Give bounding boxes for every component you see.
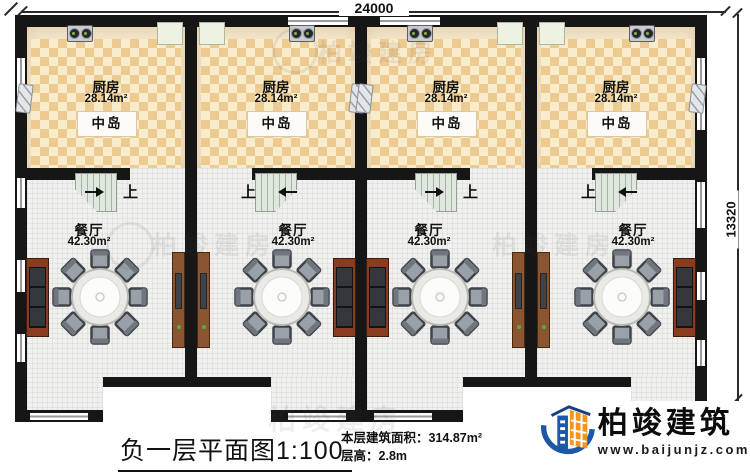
watermark-text: 柏竣建房 (492, 226, 616, 262)
cabinet (172, 252, 185, 348)
plan-scale: 1:100 (276, 437, 344, 465)
wall-party-3-4 (525, 15, 537, 387)
watermark-text: 柏竣建房 (152, 226, 276, 262)
wall-party-2-3 (355, 15, 367, 422)
stair-direction-arrow (425, 191, 437, 193)
unit-3: 上 厨房 28.14m² 中岛 餐厅 42.30m² (367, 27, 525, 422)
kitchen-island: 中岛 (247, 111, 307, 137)
sofa-cushions (369, 267, 386, 328)
stairs-up-label: 上 (241, 181, 256, 202)
dining-floor-extension (27, 377, 103, 410)
window (697, 272, 705, 300)
brand-website: www.baijunjz.com (598, 442, 750, 457)
window (17, 260, 25, 292)
brand-logo-icon (536, 401, 598, 465)
sofa (673, 258, 696, 337)
window (697, 340, 705, 366)
sofa (26, 258, 49, 337)
unit-1: 上 厨房 28.14m² 中岛 餐厅 42.30m² (27, 27, 185, 422)
sofa (366, 258, 389, 337)
stair-direction-arrow (625, 191, 637, 193)
floor-height-row: 层高：2.8m (341, 447, 482, 465)
window (380, 17, 440, 25)
brand-name: 柏竣建筑 (598, 409, 750, 439)
sofa-cushions (29, 267, 46, 328)
sofa-cushions (676, 267, 693, 328)
kitchen-area-label: 28.14m² (27, 93, 185, 105)
burner-icon (643, 28, 654, 39)
kitchen-island: 中岛 (587, 111, 647, 137)
stairs-up-label: 上 (463, 181, 478, 202)
floor-area-value: 314.87m² (429, 431, 483, 445)
fridge (199, 22, 225, 45)
floor-area-row: 本层建筑面积：314.87m² (341, 429, 482, 447)
window (288, 17, 348, 25)
kitchen-area-label: 28.14m² (197, 93, 355, 105)
stove-icon (629, 25, 655, 42)
fridge (157, 22, 183, 45)
floor-height-value: 2.8m (379, 449, 408, 463)
kitchen-area-label: 28.14m² (537, 93, 695, 105)
window (697, 182, 705, 228)
kitchen-island: 中岛 (77, 111, 137, 137)
cabinet (537, 252, 550, 348)
wall-party-1-2 (185, 15, 197, 387)
brand-logo: 柏竣建筑 www.baijunjz.com (532, 401, 750, 465)
window (17, 178, 25, 208)
kitchen-area-label: 28.14m² (367, 93, 525, 105)
floor-area-label: 本层建筑面积： (341, 431, 429, 445)
brand-text: 柏竣建筑 www.baijunjz.com (598, 409, 750, 457)
stove-icon (67, 25, 93, 42)
dining-table (384, 241, 496, 353)
burner-icon (81, 28, 92, 39)
fridge (539, 22, 565, 45)
cabinet (512, 252, 525, 348)
unit-2: 上 厨房 28.14m² 中岛 餐厅 42.30m² (197, 27, 355, 422)
stair-direction-arrow (85, 191, 97, 193)
watermark-logo-circle (272, 28, 318, 74)
plan-title: 负一层平面图1:100 (118, 431, 352, 472)
corner-break-mark (4, 2, 18, 16)
watermark-text: 柏竣建房 (318, 33, 438, 68)
window (17, 334, 25, 362)
sofa-cushions (336, 267, 353, 328)
dimension-top-label: 24000 (339, 0, 409, 16)
burner-icon (69, 28, 80, 39)
watermark-logo-circle (106, 222, 154, 270)
dimension-right-label: 13320 (724, 191, 739, 249)
unit-4: 上 厨房 28.14m² 中岛 餐厅 42.30m² (537, 27, 695, 422)
stairs-up-label: 上 (581, 181, 596, 202)
cabinet (197, 252, 210, 348)
floor-height-label: 层高： (341, 449, 379, 463)
logo-building-orange (570, 410, 587, 449)
sofa (333, 258, 356, 337)
plan-info: 本层建筑面积：314.87m² 层高：2.8m (341, 429, 482, 465)
fridge (497, 22, 523, 45)
plan-title-text: 负一层平面图 (120, 437, 276, 465)
kitchen-island: 中岛 (417, 111, 477, 137)
stairs-up-label: 上 (123, 181, 138, 202)
stair-direction-arrow (285, 191, 297, 193)
floorplan-canvas: 上 厨房 28.14m² 中岛 餐厅 42.30m² 上 厨房 28.14m² … (0, 0, 750, 473)
burner-icon (631, 28, 642, 39)
